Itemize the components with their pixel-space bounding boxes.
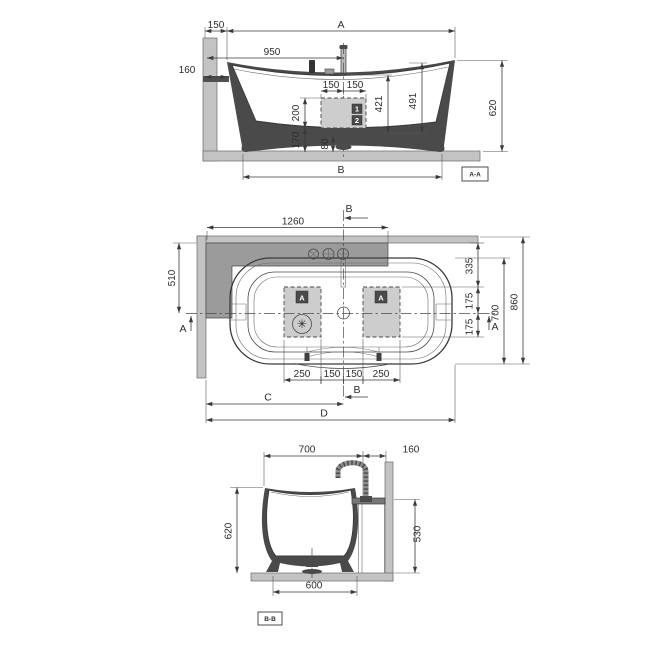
wall-plan [197,236,206,378]
technical-drawing-page: 1 2 150 A 950 160 150 150 200 [0,0,650,650]
dim-700-plan: 700 [491,304,502,321]
dim-200: 200 [291,104,302,121]
dim-80: 80 [320,138,331,150]
overflow-fitting [325,69,334,74]
dim-620: 620 [488,99,499,116]
hose-mount [360,496,372,502]
dim-510: 510 [167,269,178,286]
dim-D: D [320,408,328,420]
dim-150-a: 150 [323,80,340,91]
dim-250-right: 250 [373,369,390,380]
section-tag-aa: A-A [469,172,481,179]
dim-700-end: 700 [299,445,316,456]
lip-block-left [305,353,310,361]
dim-A: A [337,19,344,31]
dim-160: 160 [179,65,196,76]
dim-B-top: B [345,203,352,215]
counter-edge [197,236,478,243]
dim-C: C [264,392,272,404]
dim-170: 170 [291,131,302,148]
skirt-panel [359,504,385,573]
left-tab [230,304,246,320]
marker-a-right-label: A [378,294,384,303]
dim-620-end: 620 [224,522,235,539]
section-arrow-a-left: A [179,323,186,335]
view-plan: A A ✳ B 1260 510 A 335 [167,203,530,423]
dim-175-upper: 175 [465,292,476,309]
dim-160-end: 160 [403,445,420,456]
view-end-section: 700 160 620 530 600 B-B [224,445,424,626]
tub-outline-inner [254,277,428,347]
marker-2-label: 2 [355,116,359,125]
dim-175-lower: 175 [465,318,476,335]
dim-150-left: 150 [324,369,341,380]
dim-B: B [337,164,344,176]
lip-block-right [377,353,382,361]
dim-150-topleft: 150 [208,20,225,31]
floor-section [203,151,480,161]
section-arrow-a-right: A [491,321,498,333]
handle [309,60,315,73]
right-tab [436,304,452,320]
dim-150-right: 150 [346,369,363,380]
bathtub-drawing-svg: 1 2 150 A 950 160 150 150 200 [0,0,650,650]
marker-a-left-label: A [299,294,305,303]
tub-interior-end [267,490,354,556]
wall-section [203,38,217,161]
dim-600: 600 [306,581,323,592]
view-side-section: 1 2 150 A 950 160 150 150 200 [179,19,508,181]
bottom-lip-detail [307,347,379,358]
dim-530: 530 [413,525,424,542]
dim-B-bottom: B [353,384,360,396]
dim-860: 860 [510,293,521,310]
dim-950: 950 [264,47,281,58]
section-tag-bb: B-B [264,616,276,623]
dim-335: 335 [465,257,476,274]
wall-end [385,462,393,581]
marker-1-label: 1 [355,105,359,114]
dim-250-left: 250 [294,369,311,380]
dim-491: 491 [408,92,419,109]
dim-421: 421 [374,95,385,112]
asterisk-symbol: ✳ [297,317,307,331]
dim-150-b: 150 [347,80,364,91]
dim-1260: 1260 [282,217,305,228]
